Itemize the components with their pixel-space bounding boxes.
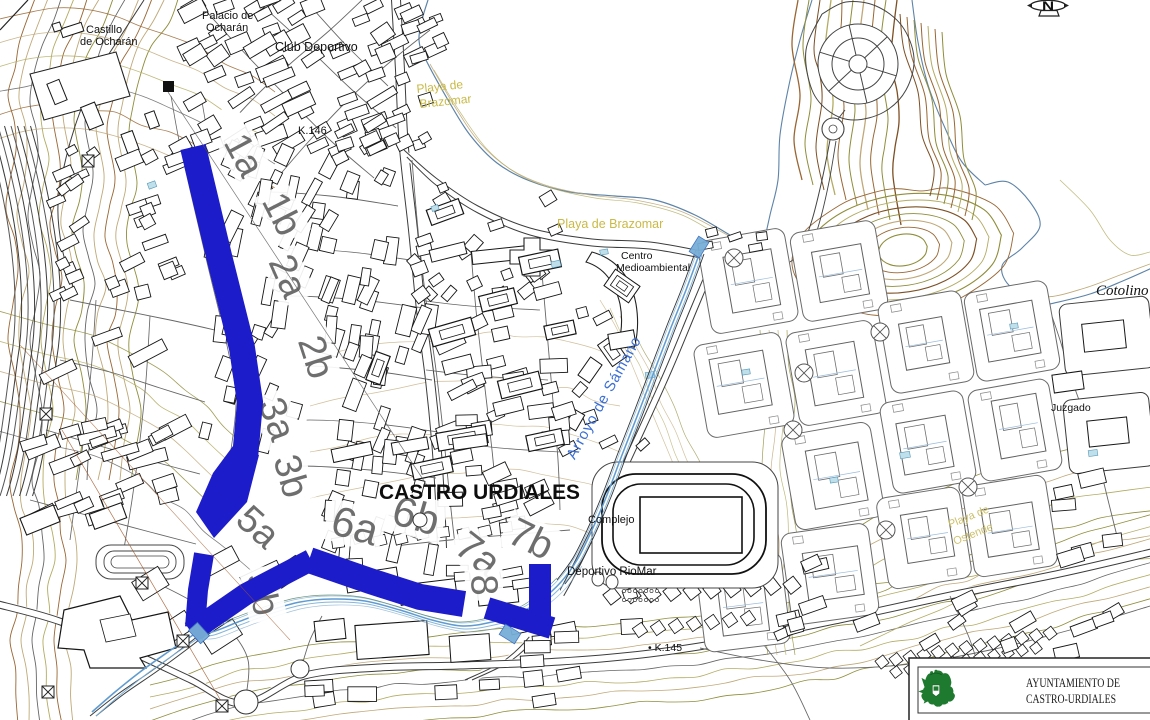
svg-text:Club Deportivo: Club Deportivo bbox=[275, 40, 358, 54]
svg-text:Castillo: Castillo bbox=[86, 24, 122, 36]
svg-text:Centro: Centro bbox=[621, 250, 653, 262]
svg-text:Medioambiental: Medioambiental bbox=[616, 262, 690, 274]
svg-text:AYUNTAMIENTO DE: AYUNTAMIENTO DE bbox=[1026, 675, 1120, 690]
svg-text:N: N bbox=[1042, 0, 1054, 13]
svg-text:• K.145: • K.145 bbox=[648, 642, 682, 654]
svg-text:Deportivo RioMar: Deportivo RioMar bbox=[567, 566, 657, 578]
svg-text:CASTRO-URDIALES: CASTRO-URDIALES bbox=[1026, 691, 1116, 706]
svg-text:Juzgado: Juzgado bbox=[1051, 402, 1091, 414]
svg-text:Playa de Brazomar: Playa de Brazomar bbox=[557, 217, 663, 231]
svg-text:Cotolino: Cotolino bbox=[1096, 283, 1149, 299]
svg-text:8: 8 bbox=[462, 574, 505, 597]
svg-text:Palacio de: Palacio de bbox=[202, 10, 253, 22]
svg-text:CASTRO URDIALES: CASTRO URDIALES bbox=[379, 480, 580, 504]
svg-text:Complejo: Complejo bbox=[588, 514, 634, 526]
svg-text:K.146: K.146 bbox=[298, 125, 327, 137]
svg-text:Ocharán: Ocharán bbox=[206, 22, 248, 34]
svg-text:de Ocharán: de Ocharán bbox=[80, 36, 137, 48]
